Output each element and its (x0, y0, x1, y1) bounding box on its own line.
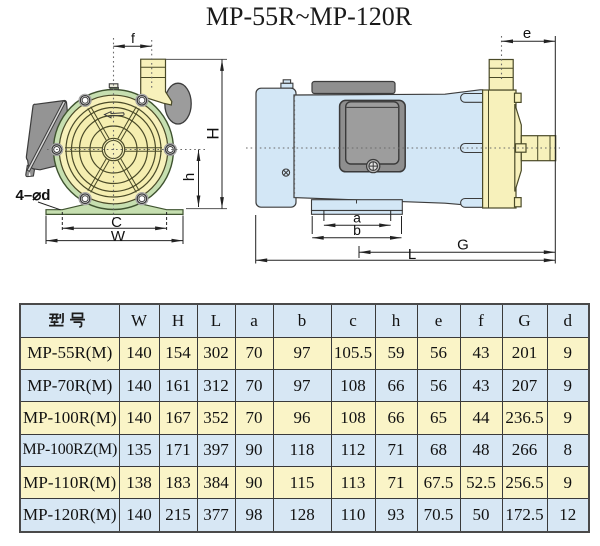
svg-text:f: f (131, 30, 135, 46)
svg-text:e: e (523, 25, 531, 42)
svg-text:h: h (181, 173, 198, 181)
svg-text:4–⌀d: 4–⌀d (16, 187, 51, 204)
svg-text:W: W (111, 228, 126, 245)
svg-text:G: G (457, 237, 469, 254)
svg-text:L: L (408, 246, 416, 263)
svg-text:H: H (204, 127, 223, 139)
svg-text:b: b (353, 222, 361, 238)
